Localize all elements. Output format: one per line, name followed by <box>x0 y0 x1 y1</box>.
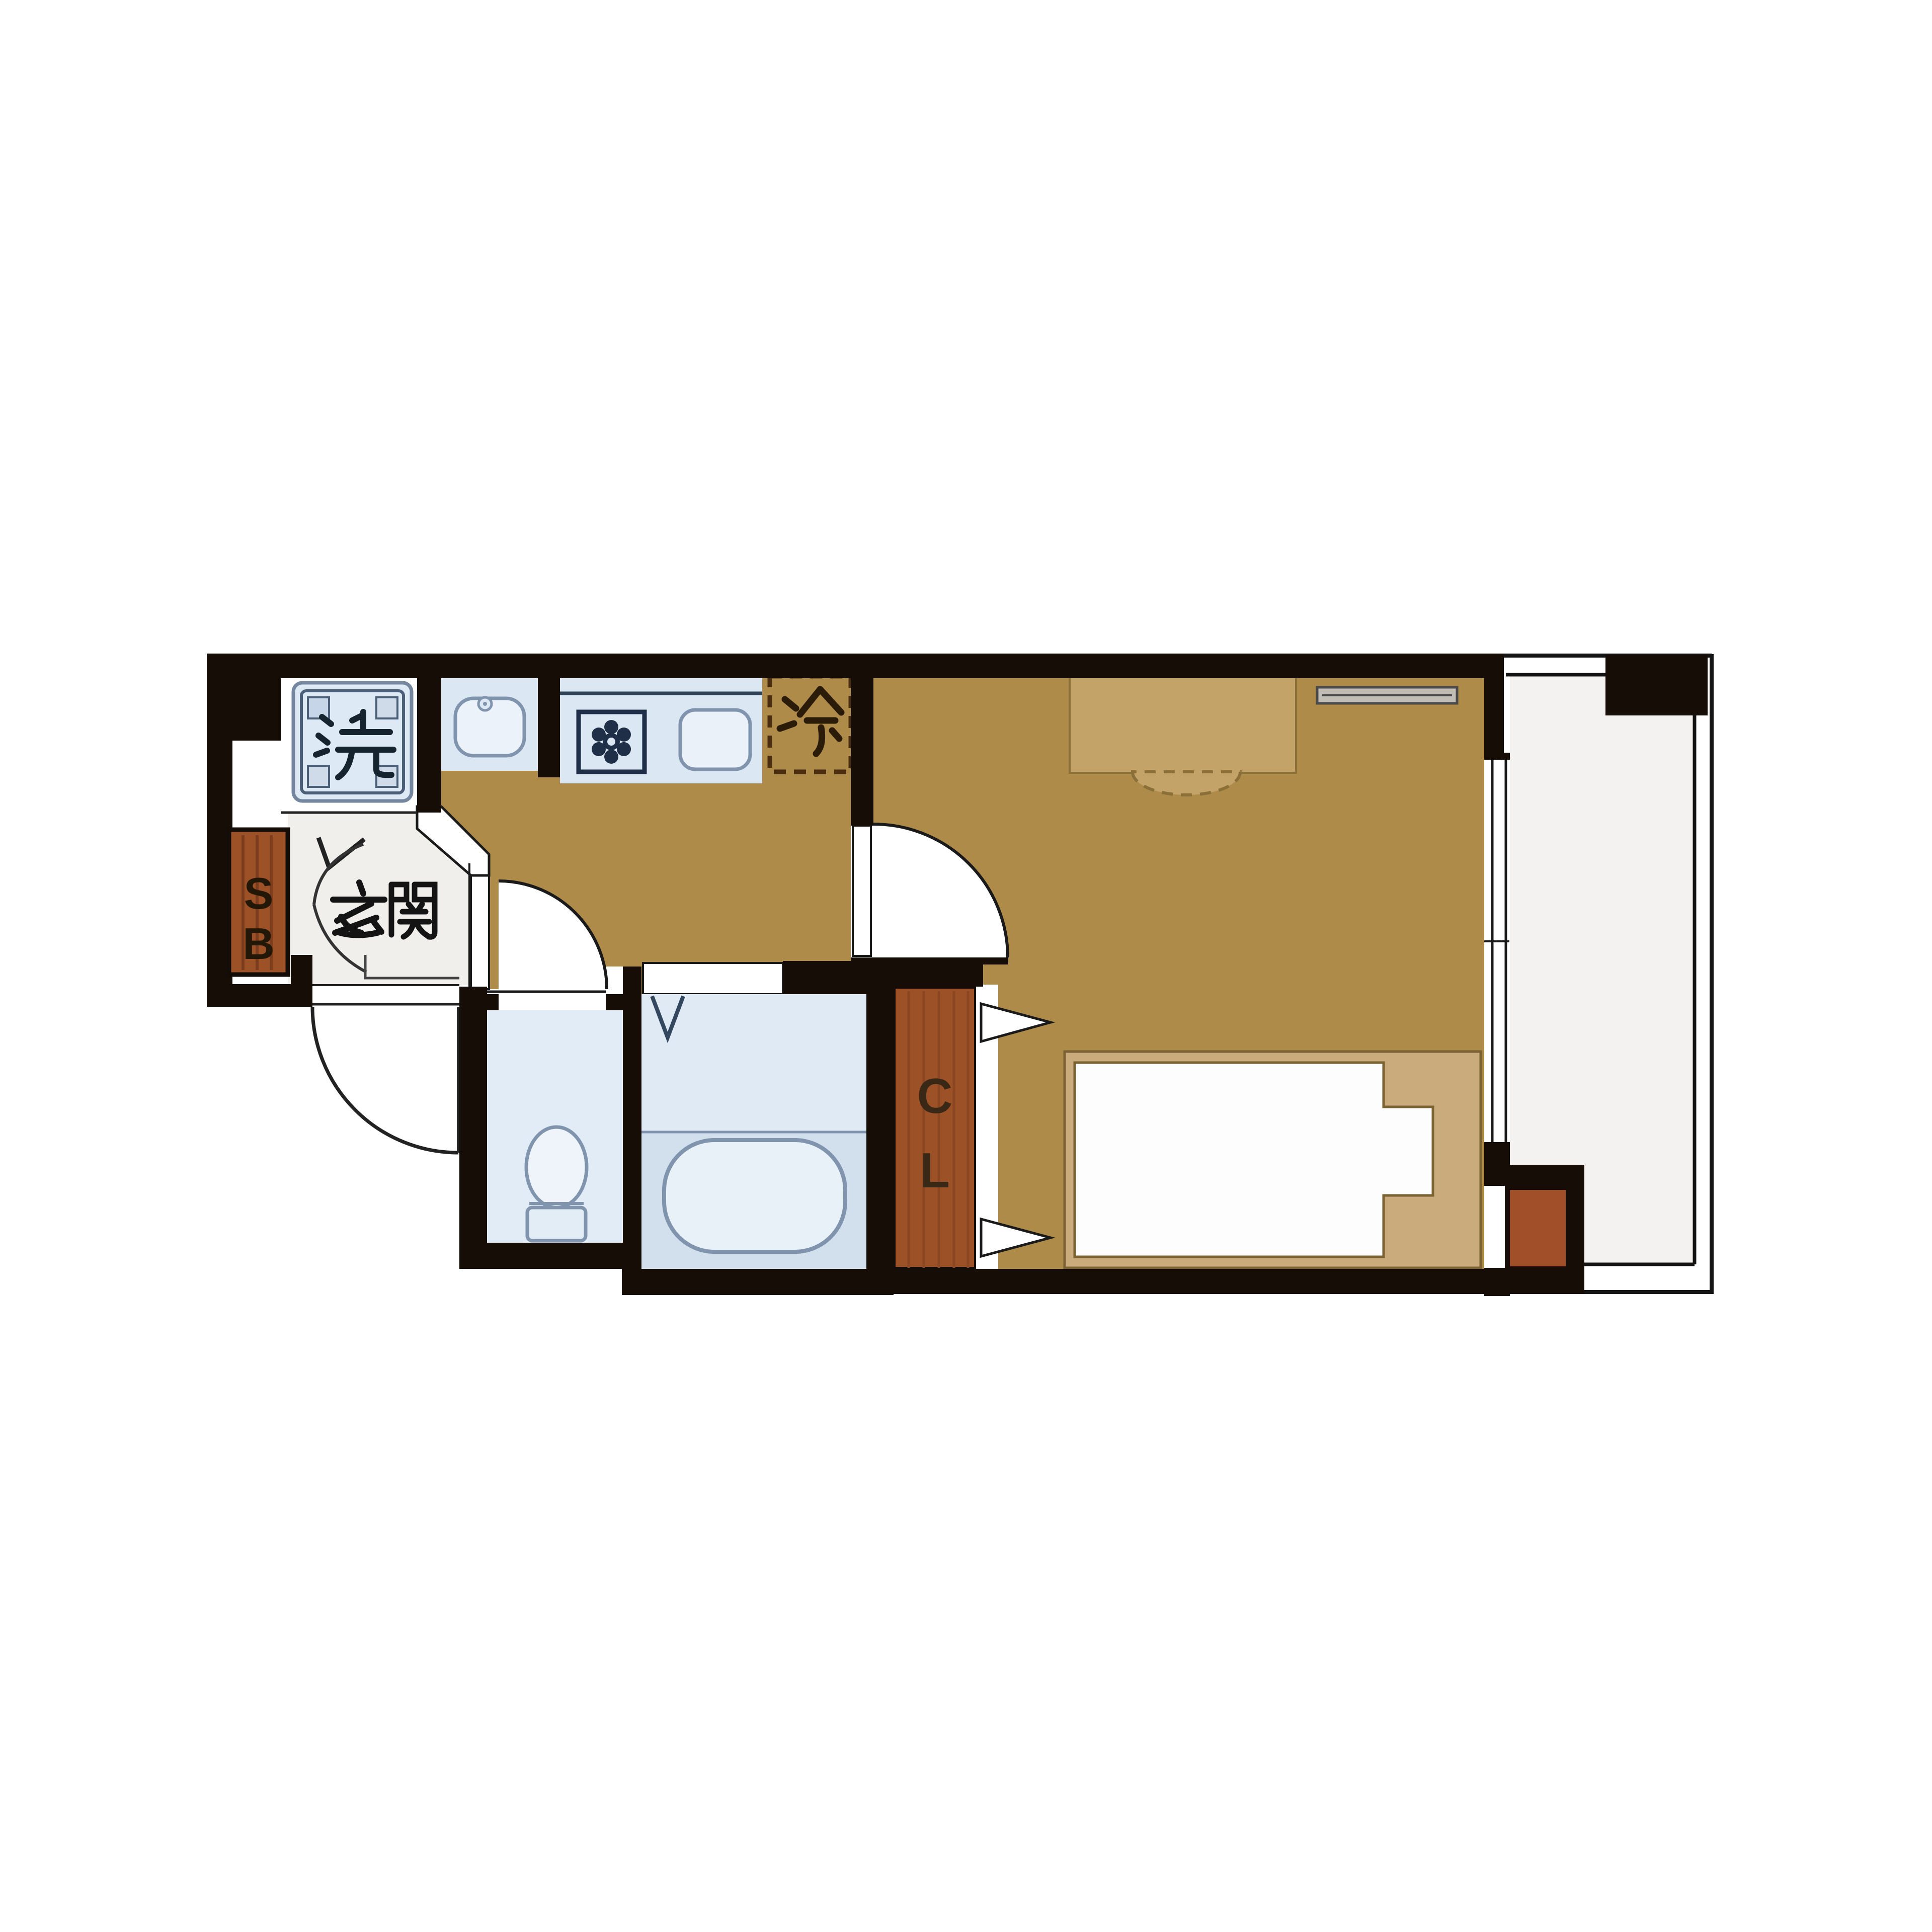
svg-text:S: S <box>244 868 274 918</box>
svg-text:L: L <box>920 1143 950 1198</box>
svg-text:C: C <box>917 1068 953 1123</box>
svg-text:B: B <box>243 919 275 969</box>
